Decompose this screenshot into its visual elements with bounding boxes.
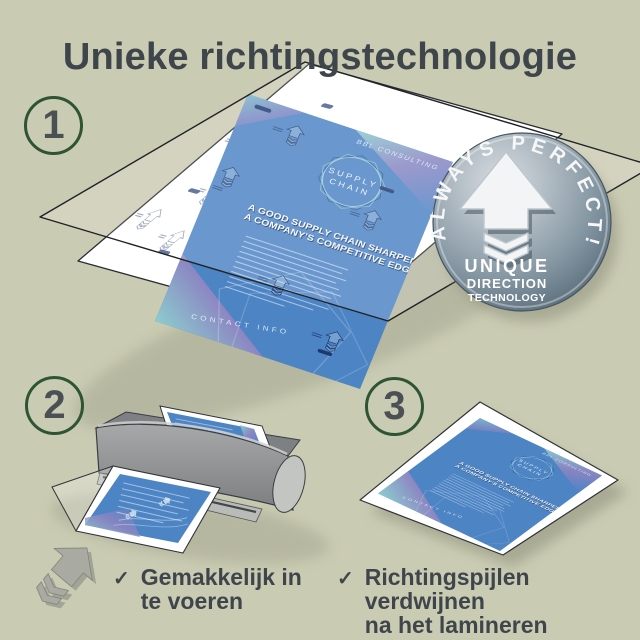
- checkmark-icon: ✓: [337, 565, 354, 637]
- caption2-line1: Richtingspijlen verdwijnen: [365, 565, 640, 613]
- badge-line2: DIRECTION: [467, 276, 548, 291]
- step2-number: 2: [43, 383, 65, 428]
- illustration-canvas: SUPPLY CHAIN BBL CONSULTING A GOOD SUPPL…: [0, 0, 640, 640]
- flyer-step3: [366, 418, 610, 564]
- step1-illustration: ALWAYS PERFECT! UNIQUE DIRECTION TECHNOL…: [40, 62, 640, 467]
- step3-number: 3: [383, 384, 405, 429]
- page-title: Unieke richtingstechnologie: [0, 36, 640, 79]
- caption2-line2: na het lamineren: [365, 613, 640, 637]
- caption-arrows-disappear: ✓ Richtingspijlen verdwijnen na het lami…: [337, 565, 640, 637]
- badge-line1: UNIQUE: [464, 256, 549, 276]
- step1-number-circle: 1: [24, 96, 83, 155]
- caption1-line1: Gemakkelijk in: [141, 565, 302, 589]
- caption-easy-feed: ✓ Gemakkelijk in te voeren: [113, 565, 302, 613]
- caption1-line2: te voeren: [141, 589, 302, 613]
- feed-direction-arrow-icon: [23, 532, 109, 621]
- checkmark-icon: ✓: [113, 565, 130, 613]
- badge-line3: TECHNOLOGY: [468, 292, 546, 304]
- step2-number-circle: 2: [25, 376, 84, 435]
- step1-number: 1: [42, 103, 64, 148]
- step3-number-circle: 3: [365, 377, 424, 436]
